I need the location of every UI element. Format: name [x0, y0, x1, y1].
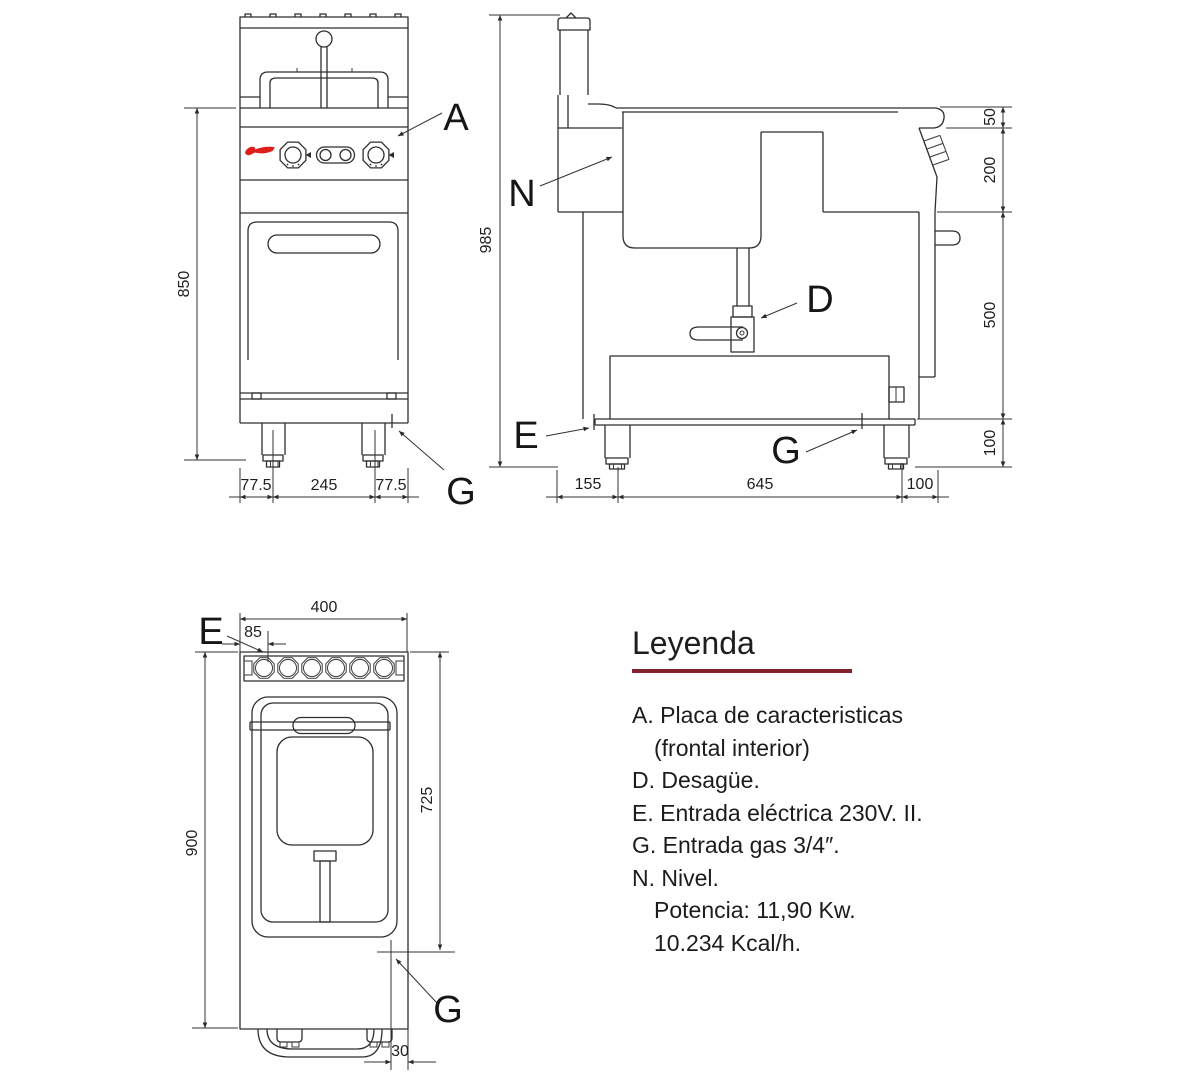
drain-assembly[interactable]: [690, 248, 754, 352]
legend-item-a: A. Placa de caracteristicas: [632, 699, 962, 732]
legend-item-n: N. Nivel.: [632, 862, 962, 895]
legend-item-a2: (frontal interior): [632, 732, 962, 765]
dim-back: 155: [575, 476, 602, 493]
oven-door[interactable]: [248, 222, 398, 360]
side-view: 985 50 200 500 100 155 645 100 N D E: [478, 13, 1012, 503]
callout-g-front: G: [446, 471, 476, 513]
base-frame: [595, 419, 915, 425]
front-body-outline: [240, 28, 408, 423]
plan-body: [240, 652, 408, 1029]
legend-title: Leyenda: [632, 626, 962, 660]
dim-front-height: 850: [176, 271, 193, 298]
callout-a: A: [443, 97, 469, 139]
dim-inner-depth: 725: [419, 787, 436, 814]
callout-e-plan: E: [198, 611, 223, 653]
front-view: 850 77.5 245 77.5 A G: [176, 14, 476, 513]
basket-lift-knob: [316, 31, 332, 108]
burner-drawer: [610, 356, 904, 419]
front-top-rail: [240, 14, 408, 28]
plan-dimensions: 400 85 900 725 30: [184, 599, 455, 1062]
drain-lever: [690, 327, 743, 340]
legend: Leyenda A. Placa de caracteristicas (fro…: [632, 626, 962, 959]
dim-foot-left: 77.5: [240, 477, 271, 494]
plinth-lines: [240, 393, 408, 399]
legend-item-e: E. Entrada eléctrica 230V. II.: [632, 797, 962, 830]
dim-depth: 645: [747, 476, 774, 493]
side-handle: [935, 231, 960, 245]
control-knob-right[interactable]: [363, 142, 389, 168]
chimney: [558, 13, 590, 95]
control-knob-left[interactable]: [280, 142, 306, 168]
callout-g-plan: G: [433, 989, 463, 1031]
door-handle-slot: [268, 235, 380, 253]
dim-side-height: 985: [478, 227, 495, 254]
dim-splash: 50: [982, 108, 999, 126]
side-dimensions: 985 50 200 500 100 155 645 100: [478, 15, 1012, 503]
legend-item-g: G. Entrada gas 3/4″.: [632, 829, 962, 862]
worktop-side: [616, 108, 944, 128]
legend-rule: [632, 669, 852, 673]
side-legs: [605, 425, 909, 469]
fry-basket-plan: [250, 718, 390, 923]
dim-front: 100: [907, 476, 934, 493]
dim-width: 400: [311, 599, 338, 616]
front-handle-plan: [258, 1029, 392, 1057]
dim-elec: 85: [244, 624, 262, 641]
dim-gas-offset: 30: [391, 1043, 409, 1060]
dim-foot-right: 77.5: [375, 477, 406, 494]
piezo-indicator: [317, 147, 355, 163]
backsplash: [558, 95, 623, 212]
front-callouts: A G: [398, 97, 476, 513]
callout-n: N: [508, 173, 535, 215]
side-control-panel: [919, 128, 949, 212]
fryer-vat: [623, 112, 919, 248]
brand-logo: [245, 147, 275, 156]
basket-grip: [293, 718, 355, 734]
callout-g-side: G: [771, 430, 801, 472]
plan-view: 400 85 900 725 30 E G: [184, 599, 463, 1070]
front-legs: [262, 423, 385, 467]
legend-item-kcal: 10.234 Kcal/h.: [632, 927, 962, 960]
dim-panel: 200: [982, 157, 999, 184]
legend-item-power: Potencia: 11,90 Kw.: [632, 894, 962, 927]
fry-basket-handle: [260, 68, 388, 108]
callout-d: D: [806, 279, 833, 321]
legend-items: A. Placa de caracteristicas (frontal int…: [632, 699, 962, 959]
technical-drawing-page: 850 77.5 245 77.5 A G: [0, 0, 1200, 1080]
worktop-lines: [240, 97, 408, 127]
dim-legs-span: 245: [311, 477, 338, 494]
legend-item-d: D. Desagüe.: [632, 764, 962, 797]
drawing-canvas: 850 77.5 245 77.5 A G: [0, 0, 1200, 1080]
dim-plan-depth: 900: [184, 830, 201, 857]
control-panel: [240, 142, 408, 213]
dim-legs: 100: [982, 430, 999, 457]
callout-e-side: E: [513, 415, 538, 457]
dim-body: 500: [982, 302, 999, 329]
